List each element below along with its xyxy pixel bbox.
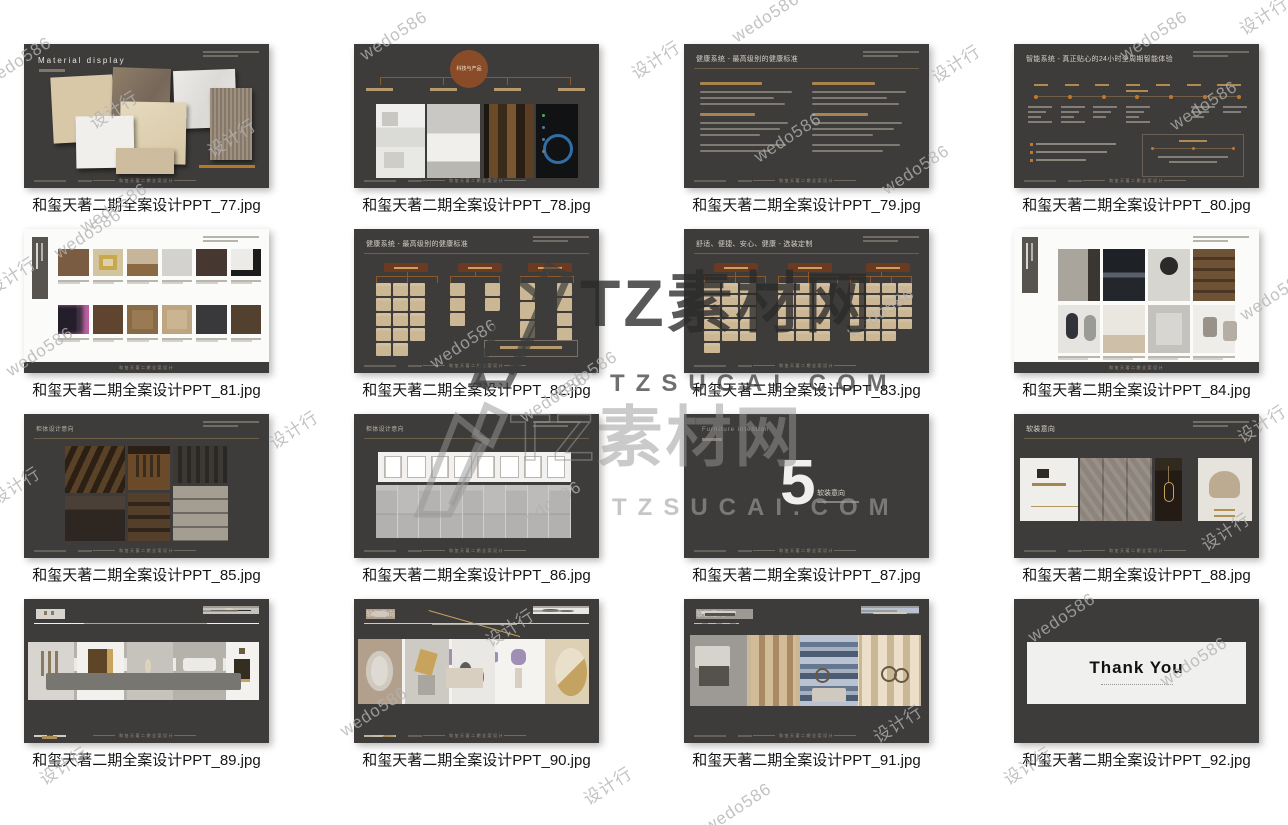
caption-bar (231, 280, 262, 282)
caption-row-1 (58, 280, 261, 282)
text-line (1126, 111, 1144, 113)
option-box (882, 307, 896, 317)
option-box (866, 307, 880, 317)
title-rule (34, 623, 259, 624)
option-box (778, 331, 794, 341)
file-item-81[interactable]: 和玺天著二期全案设计 和玺天著二期全案设计PPT_81.jpg (24, 229, 269, 400)
text-line (700, 91, 792, 93)
option-box (740, 307, 756, 317)
slide-footer: 和玺天著二期全案设计 (24, 178, 269, 184)
furniture-photo (127, 642, 173, 700)
mini-timeline (1151, 148, 1235, 152)
connector (450, 276, 500, 283)
closet-photo (173, 486, 228, 541)
file-item-90[interactable]: 软装意向 和玺天著二期全案设计 和玺天著二期全案设计PPT_90.jpg (354, 599, 599, 770)
closet-photo (65, 496, 125, 541)
option-box (485, 283, 500, 296)
text-line (700, 150, 770, 152)
device-photo (93, 305, 124, 334)
slide-footer: 和玺天著二期全案设计 (1014, 362, 1259, 373)
thankyou-dotted-rule (1101, 684, 1173, 686)
text-line (700, 82, 762, 85)
closet-photo (128, 493, 170, 541)
group-header (788, 263, 832, 272)
slide-thumbnail-79[interactable]: 健康系统 - 最高级别的健康标准 和玺天著二期全案设计 (684, 44, 929, 188)
decor-photo (452, 639, 496, 704)
sketch-box (454, 456, 472, 478)
text-line (1126, 121, 1150, 123)
file-name[interactable]: 和玺天著二期全案设计PPT_77.jpg (24, 197, 269, 215)
file-grid: Material display 和玺天著二期全案设计 和玺天著二期全案设计PP… (24, 44, 1259, 770)
option-box (796, 283, 812, 293)
text-line (700, 134, 760, 136)
title-rule (364, 623, 589, 624)
decor-photo (498, 639, 542, 704)
connector (520, 276, 574, 283)
text-line (812, 144, 900, 146)
connector (778, 276, 838, 283)
title-rule (694, 68, 919, 69)
slide-footer: 和玺天著二期全案设计 (354, 548, 599, 554)
callout-title-bar (1179, 140, 1207, 142)
elevation-module (528, 485, 550, 538)
text-line (1191, 116, 1204, 118)
text-line (812, 82, 875, 85)
caption-bar (58, 338, 89, 340)
file-name[interactable]: 和玺天著二期全案设计PPT_89.jpg (24, 752, 269, 770)
option-box (850, 295, 864, 305)
option-grid (376, 283, 425, 356)
caption-bar (231, 338, 262, 340)
connector (704, 276, 766, 283)
interior-photo (1058, 249, 1100, 301)
text-line (1061, 116, 1074, 118)
text-line (700, 103, 785, 105)
text-line (1028, 111, 1046, 113)
option-box (778, 319, 794, 329)
option-box (557, 298, 572, 311)
option-box (740, 331, 756, 341)
option-box (796, 319, 812, 329)
furniture-photo-lamp (1155, 458, 1182, 521)
caption-bar (162, 280, 193, 282)
elevation-module (549, 485, 571, 538)
caption-bar (58, 280, 89, 282)
slide-thumbnail-91[interactable]: 软装意向 和玺天著二期全案设计 (684, 599, 929, 743)
file-name[interactable]: 和玺天著二期全案设计PPT_81.jpg (24, 382, 269, 400)
option-box (814, 331, 830, 341)
slide-thumbnail-85[interactable]: 柜体设计意向 和玺天著二期全案设计 (24, 414, 269, 558)
photo-row-2 (1058, 305, 1235, 353)
option-box (722, 307, 738, 317)
option-box (704, 283, 720, 293)
product-photo (1193, 305, 1235, 353)
closet-photo (173, 446, 228, 483)
file-name[interactable]: 和玺天著二期全案设计PPT_87.jpg (684, 567, 929, 585)
interior-photo (1148, 249, 1190, 301)
section-number: 5 (780, 450, 816, 514)
text-line (812, 113, 868, 116)
option-box (866, 295, 880, 305)
option-box (410, 298, 425, 311)
photo-row-1 (58, 249, 261, 276)
option-column (485, 283, 500, 313)
file-item-88[interactable]: 软装意向 和玺天著二期全案设计 和玺天著二期全案设计PPT_88.jpg (1014, 414, 1259, 585)
device-photo (58, 305, 89, 334)
caption-bar (1148, 356, 1190, 358)
slide-thumbnail-77[interactable]: Material display 和玺天著二期全案设计 (24, 44, 269, 188)
photo-kitchen-cabinet (427, 104, 480, 178)
text-line (812, 97, 887, 99)
title-rule (34, 438, 259, 439)
caption-bar (1193, 356, 1235, 358)
option-column (520, 283, 535, 340)
file-item-82[interactable]: 健康系统 - 最高级别的健康标准 和玺天著二期全案设计 和玺天著二期全案设计PP… (354, 229, 599, 400)
option-box (796, 295, 812, 305)
furniture-photo (28, 642, 74, 700)
option-box (866, 319, 880, 329)
text-line (812, 103, 899, 105)
slide-title: 软装意向 (1026, 424, 1055, 434)
device-photo (196, 305, 227, 334)
header-note (1193, 236, 1249, 244)
furniture-photo (176, 642, 222, 700)
option-box (520, 302, 535, 319)
decor-photo (358, 639, 402, 704)
device-photo (231, 249, 262, 276)
option-box (393, 283, 408, 296)
text-line (1223, 111, 1241, 113)
file-item-79[interactable]: 健康系统 - 最高级别的健康标准 和玺天著二期全案设计 和玺天著二期全案设计PP… (684, 44, 929, 215)
photo-wardrobe (484, 104, 534, 178)
slide-footer: 和玺天著二期全案设计 (354, 363, 599, 369)
device-photo (58, 249, 89, 276)
option-grid (778, 283, 830, 341)
device-photo (162, 305, 193, 334)
option-box (722, 331, 738, 341)
timeline-mid-label (1126, 90, 1148, 92)
accent-label-bar (199, 165, 255, 168)
thankyou-band: Thank You (1027, 642, 1246, 704)
diagram-root-badge: 科技与产品 (450, 50, 488, 88)
option-box (778, 283, 794, 293)
material-swatch (116, 148, 174, 174)
option-box (850, 307, 864, 317)
text-line (1028, 106, 1052, 108)
option-box (814, 295, 830, 305)
option-box (850, 283, 864, 293)
file-item-85[interactable]: 柜体设计意向 和玺天著二期全案设计 和玺天著二期全案设计PPT_85.jpg (24, 414, 269, 585)
slide-footer: 和玺天著二期全案设计 (684, 548, 929, 554)
text-line (700, 113, 755, 116)
fabric-photo (751, 635, 796, 706)
file-item-92[interactable]: Thank You 和玺天著二期全案设计PPT_92.jpg (1014, 599, 1259, 770)
furniture-photo (77, 642, 123, 700)
slide-thumbnail-89[interactable]: 软装意向 和玺天著二期全案设计 (24, 599, 269, 743)
elevation-module (484, 485, 506, 538)
group-header (384, 263, 428, 272)
file-name[interactable]: 和玺天著二期全案设计PPT_91.jpg (684, 752, 929, 770)
option-box (740, 283, 756, 293)
header-note (203, 421, 259, 429)
option-box (850, 331, 864, 341)
caption-row (1058, 356, 1235, 358)
slide-thumbnail-82[interactable]: 健康系统 - 最高级别的健康标准 和玺天著二期全案设计 (354, 229, 599, 373)
option-column (557, 283, 572, 343)
fabric-photo (800, 635, 858, 706)
file-name[interactable]: 和玺天著二期全案设计PPT_86.jpg (354, 567, 599, 585)
text-line (812, 122, 902, 124)
file-item-80[interactable]: 智能系统 - 真正贴心的24小时全周期智能体验 (1014, 44, 1259, 215)
group-header (458, 263, 502, 272)
bullet-line (1036, 143, 1116, 145)
option-box (393, 313, 408, 326)
elevation-panel (376, 485, 571, 538)
option-box (376, 328, 391, 341)
title-rule (694, 623, 739, 624)
elevation-module (398, 485, 420, 538)
photo-row-2 (58, 305, 261, 334)
option-box (778, 307, 794, 317)
group-header (714, 263, 758, 272)
bullet-line (1036, 151, 1107, 153)
group-header (528, 263, 572, 272)
sketch-box (407, 456, 425, 478)
photo-row-1 (1058, 249, 1235, 301)
section-eyebrow: Furniture intention (702, 427, 769, 433)
slide-thumbnail-78[interactable]: 科技与产品 和玺天著二期全案设计 (354, 44, 599, 188)
elevation-module (463, 485, 485, 538)
option-box (898, 307, 912, 317)
header-note (203, 51, 259, 59)
caption-bar (196, 338, 227, 340)
product-photo (1058, 305, 1100, 353)
file-name[interactable]: 和玺天著二期全案设计PPT_80.jpg (1014, 197, 1259, 215)
text-line (1093, 111, 1111, 113)
slide-thumbnail-92[interactable]: Thank You (1014, 599, 1259, 743)
watermark-text: 设计行 (1234, 0, 1288, 40)
file-name[interactable]: 和玺天著二期全案设计PPT_92.jpg (1014, 752, 1259, 770)
option-box (898, 319, 912, 329)
option-box (393, 298, 408, 311)
option-box (814, 319, 830, 329)
sketch-box (431, 456, 449, 478)
interior-photo (1193, 249, 1235, 301)
product-photo (1148, 305, 1190, 353)
option-box (450, 283, 465, 296)
section-label: 软装意向 (817, 488, 845, 498)
option-box (704, 307, 720, 317)
device-photo (231, 305, 262, 334)
option-box (898, 283, 912, 293)
header-note (863, 236, 919, 244)
text-line (1061, 111, 1079, 113)
caption-bar (127, 280, 158, 282)
slide-thumbnail-90[interactable]: 软装意向 和玺天著二期全案设计 (354, 599, 599, 743)
header-note (203, 606, 259, 614)
slide-title: 健康系统 - 最高级别的健康标准 (696, 54, 798, 64)
option-box (410, 328, 425, 341)
file-name[interactable]: 和玺天著二期全案设计PPT_83.jpg (684, 382, 929, 400)
file-name[interactable]: 和玺天著二期全案设计PPT_85.jpg (24, 567, 269, 585)
option-grid (704, 283, 756, 353)
option-box (778, 295, 794, 305)
product-photo (1103, 305, 1145, 353)
slide-footer: 和玺天著二期全案设计 (24, 548, 269, 554)
furniture-photo-chair (1198, 458, 1252, 521)
option-box (376, 298, 391, 311)
interior-photo (1103, 249, 1145, 301)
title-rule (1024, 438, 1249, 439)
text-line (812, 128, 894, 130)
option-box (704, 343, 720, 353)
slide-thumbnail-81[interactable]: 和玺天著二期全案设计 (24, 229, 269, 373)
file-name[interactable]: 和玺天著二期全案设计PPT_90.jpg (354, 752, 599, 770)
text-line (1126, 116, 1139, 118)
slide-footer: 和玺天著二期全案设计 (24, 362, 269, 373)
option-box (450, 298, 465, 311)
slide-thumbnail-84[interactable]: 和玺天著二期全案设计 (1014, 229, 1259, 373)
file-item-89[interactable]: 软装意向 和玺天著二期全案设计 和玺天著二期全案设计PPT_89.jpg (24, 599, 269, 770)
option-box (882, 319, 896, 329)
slide-footer: 和玺天著二期全案设计 (684, 178, 929, 184)
file-name[interactable]: 和玺天著二期全案设计PPT_79.jpg (684, 197, 929, 215)
slide-title: Material display (38, 56, 126, 65)
option-box (796, 307, 812, 317)
option-box (704, 295, 720, 305)
option-box (376, 313, 391, 326)
slide-title: 软装意向 (366, 609, 395, 619)
title-rule (364, 438, 589, 439)
slide-thumbnail-86[interactable]: 柜体设计意向 和玺天著二期全案设计 (354, 414, 599, 558)
file-item-87[interactable]: Furniture intention 5 软装意向 和玺天著二期全案设计 和玺… (684, 414, 929, 585)
timeline-headers (1034, 84, 1241, 86)
option-box (722, 319, 738, 329)
callout-box (484, 340, 578, 357)
option-box (850, 319, 864, 329)
option-box (722, 283, 738, 293)
option-box (393, 343, 408, 356)
slide-title: 健康系统 - 最高级别的健康标准 (366, 239, 468, 249)
closet-photo (65, 446, 125, 493)
option-box (740, 295, 756, 305)
text-column-right (812, 82, 914, 156)
header-note (863, 51, 919, 59)
slide-footer: 和玺天著二期全案设计 (684, 733, 929, 739)
elevation-module (376, 485, 398, 538)
option-box (882, 283, 896, 293)
closet-photo (128, 446, 170, 490)
file-item-77[interactable]: Material display 和玺天著二期全案设计 和玺天著二期全案设计PP… (24, 44, 269, 215)
option-grid (850, 283, 912, 341)
option-box (882, 331, 896, 341)
wardrobe-sketch-strip (378, 452, 571, 482)
device-photo (196, 249, 227, 276)
file-name[interactable]: 和玺天著二期全案设计PPT_78.jpg (354, 197, 599, 215)
fabric-photo (862, 635, 921, 706)
furniture-photo-screen (1080, 458, 1152, 521)
file-name[interactable]: 和玺天著二期全案设计PPT_82.jpg (354, 382, 599, 400)
option-box (704, 319, 720, 329)
fabric-photo (690, 635, 747, 706)
option-column (450, 283, 465, 328)
caption-bar (127, 338, 158, 340)
header-note (1193, 51, 1249, 59)
watermark-text: wedo586 (729, 0, 804, 47)
file-item-83[interactable]: 舒适、便捷、安心、健康 - 选装定制 和玺天著二期全案设计 和玺天著二期全案设计… (684, 229, 929, 400)
file-item-84[interactable]: 和玺天著二期全案设计 和玺天著二期全案设计PPT_84.jpg (1014, 229, 1259, 400)
slide-thumbnail-83[interactable]: 舒适、便捷、安心、健康 - 选装定制 和玺天著二期全案设计 (684, 229, 929, 373)
photo-control-panel (536, 104, 578, 178)
slide-subtitle-bar (39, 69, 65, 72)
slide-footer: 和玺天著二期全案设计 (354, 178, 599, 184)
file-name[interactable]: 和玺天著二期全案设计PPT_88.jpg (1014, 567, 1259, 585)
slide-footer: 和玺天著二期全案设计 (684, 363, 929, 369)
file-item-91[interactable]: 软装意向 和玺天著二期全案设计 和玺天著二期全案设计PPT_91.jpg (684, 599, 929, 770)
option-box (410, 313, 425, 326)
slide-title: 智能系统 - 真正贴心的24小时全周期智能体验 (1026, 54, 1173, 64)
elevation-module (506, 485, 528, 538)
option-box (376, 283, 391, 296)
header-note (1193, 421, 1249, 429)
connector (850, 276, 912, 283)
file-item-86[interactable]: 柜体设计意向 和玺天著二期全案设计 和玺天著二期全案设计PPT_86.jpg (354, 414, 599, 585)
callout-box (1142, 134, 1244, 177)
text-line (700, 122, 788, 124)
decor-photo (545, 639, 589, 704)
slide-thumbnail-80[interactable]: 智能系统 - 真正贴心的24小时全周期智能体验 (1014, 44, 1259, 188)
text-line (812, 91, 906, 93)
elevation-module (419, 485, 441, 538)
slide-thumbnail-87[interactable]: Furniture intention 5 软装意向 和玺天著二期全案设计 (684, 414, 929, 558)
diagram-labels (366, 88, 585, 91)
text-line (700, 128, 780, 130)
text-line (1191, 106, 1215, 108)
header-note (533, 421, 589, 429)
slide-title: 软装意向 (36, 609, 65, 619)
option-box (866, 283, 880, 293)
option-box (796, 331, 812, 341)
option-box (882, 295, 896, 305)
connector (376, 276, 438, 283)
caption-bar (162, 338, 193, 340)
header-note (533, 606, 589, 614)
slide-title: 柜体设计意向 (366, 424, 404, 433)
sketch-box (524, 456, 542, 478)
file-name[interactable]: 和玺天著二期全案设计PPT_84.jpg (1014, 382, 1259, 400)
text-column-left (700, 82, 800, 156)
slide-title: 柜体设计意向 (36, 424, 74, 433)
furniture-photo (226, 642, 259, 700)
thankyou-text: Thank You (1027, 658, 1246, 678)
caption-bar (196, 280, 227, 282)
device-photo (162, 249, 193, 276)
option-box (520, 321, 535, 338)
option-box (740, 319, 756, 329)
text-line (1191, 111, 1209, 113)
caption-row-2 (58, 338, 261, 340)
option-box (450, 313, 465, 326)
fabric-photo-strip (690, 635, 921, 706)
section-sub-bar (817, 501, 859, 503)
group-header (866, 263, 910, 272)
slide-thumbnail-88[interactable]: 软装意向 和玺天著二期全案设计 (1014, 414, 1259, 558)
file-item-78[interactable]: 科技与产品 和玺天著二期全案设计 和玺天著二期全案设计PPT_78.jpg (354, 44, 599, 215)
text-line (812, 134, 873, 136)
text-line (1028, 121, 1052, 123)
option-box (898, 295, 912, 305)
slide-footer: 和玺天著二期全案设计 (1014, 178, 1259, 184)
